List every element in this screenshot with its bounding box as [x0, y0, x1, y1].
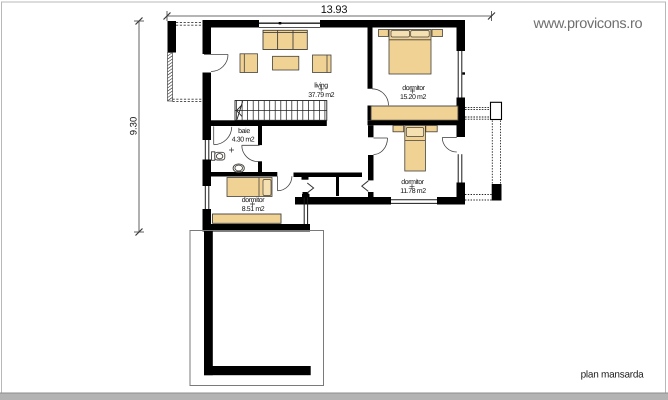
svg-text:dormitor: dormitor	[242, 196, 266, 204]
svg-text:dormitor: dormitor	[401, 178, 425, 186]
svg-text:37.79 m2: 37.79 m2	[308, 92, 334, 99]
svg-text:13.93: 13.93	[321, 4, 348, 16]
svg-text:4.30 m2: 4.30 m2	[232, 137, 255, 144]
svg-text:9.30: 9.30	[129, 117, 140, 136]
svg-text:plan mansarda: plan mansarda	[581, 369, 645, 380]
svg-text:8.51 m2: 8.51 m2	[242, 206, 265, 213]
svg-text:15.20 m2: 15.20 m2	[400, 94, 426, 101]
svg-text:11.78 m2: 11.78 m2	[400, 188, 426, 195]
svg-text:baie: baie	[238, 127, 250, 135]
svg-text:www.provicons.ro: www.provicons.ro	[533, 16, 643, 32]
